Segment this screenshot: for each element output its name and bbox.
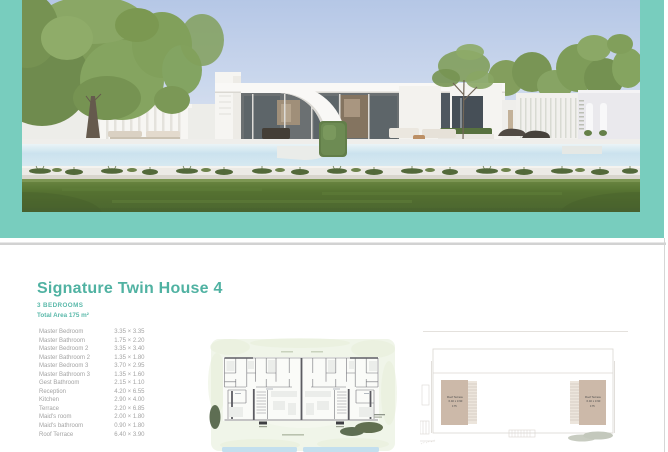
svg-text:6.40 x 3.90: 6.40 x 3.90: [587, 399, 601, 403]
svg-text:6.40 x 3.90: 6.40 x 3.90: [449, 399, 463, 403]
svg-text:175: 175: [590, 404, 595, 408]
svg-text:175: 175: [452, 404, 457, 408]
